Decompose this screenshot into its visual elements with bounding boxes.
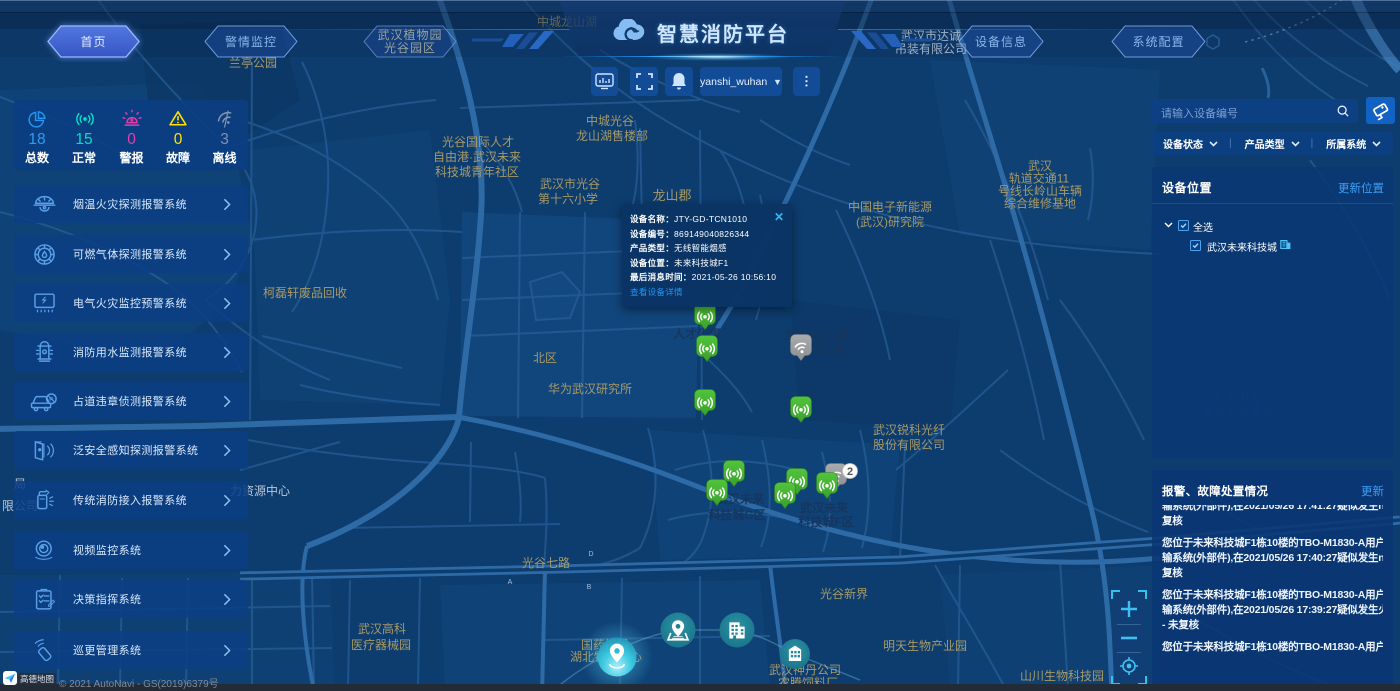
svg-text:龙山郡: 龙山郡 bbox=[652, 188, 691, 203]
svg-text:中国电子新能源: 中国电子新能源 bbox=[848, 199, 932, 214]
svg-text:(武汉)研究院: (武汉)研究院 bbox=[856, 214, 924, 229]
svg-text:股份有限公司: 股份有限公司 bbox=[873, 438, 945, 452]
svg-text:山川生物科技园: 山川生物科技园 bbox=[1020, 669, 1104, 683]
svg-text:龙山湖售楼部: 龙山湖售楼部 bbox=[576, 128, 648, 143]
svg-text:A: A bbox=[508, 579, 513, 586]
svg-text:华为武汉研究所: 华为武汉研究所 bbox=[548, 381, 632, 396]
svg-text:武汉市光谷: 武汉市光谷 bbox=[540, 176, 600, 191]
svg-text:光谷七路: 光谷七路 bbox=[522, 555, 570, 570]
svg-text:综合维修基地: 综合维修基地 bbox=[1004, 196, 1076, 211]
svg-text:明天生物产业园: 明天生物产业园 bbox=[883, 639, 967, 653]
svg-text:科技城青年社区: 科技城青年社区 bbox=[435, 164, 519, 179]
svg-text:北区: 北区 bbox=[533, 351, 557, 365]
svg-text:武汉锐科光纤: 武汉锐科光纤 bbox=[873, 423, 945, 437]
svg-text:光谷国际人才: 光谷国际人才 bbox=[442, 135, 514, 149]
svg-text:科技城F区: 科技城F区 bbox=[798, 514, 853, 529]
svg-text:柯磊轩废品回收: 柯磊轩废品回收 bbox=[263, 285, 347, 300]
svg-text:B: B bbox=[587, 584, 592, 591]
svg-text:医疗器械园: 医疗器械园 bbox=[351, 637, 411, 652]
svg-text:中城光谷: 中城光谷 bbox=[586, 113, 634, 128]
svg-text:科技城G区: 科技城G区 bbox=[708, 507, 765, 522]
svg-text:光谷新界: 光谷新界 bbox=[820, 586, 868, 601]
svg-text:第十六小学: 第十六小学 bbox=[538, 191, 598, 206]
svg-text:自由港·武汉未来: 自由港·武汉未来 bbox=[433, 150, 521, 164]
svg-text:2: 2 bbox=[847, 466, 853, 478]
svg-text:D: D bbox=[588, 551, 593, 558]
svg-text:武汉高科: 武汉高科 bbox=[358, 621, 406, 636]
svg-text:武汉未来: 武汉未来 bbox=[800, 500, 849, 515]
svg-text:观公园: 观公园 bbox=[808, 342, 844, 356]
